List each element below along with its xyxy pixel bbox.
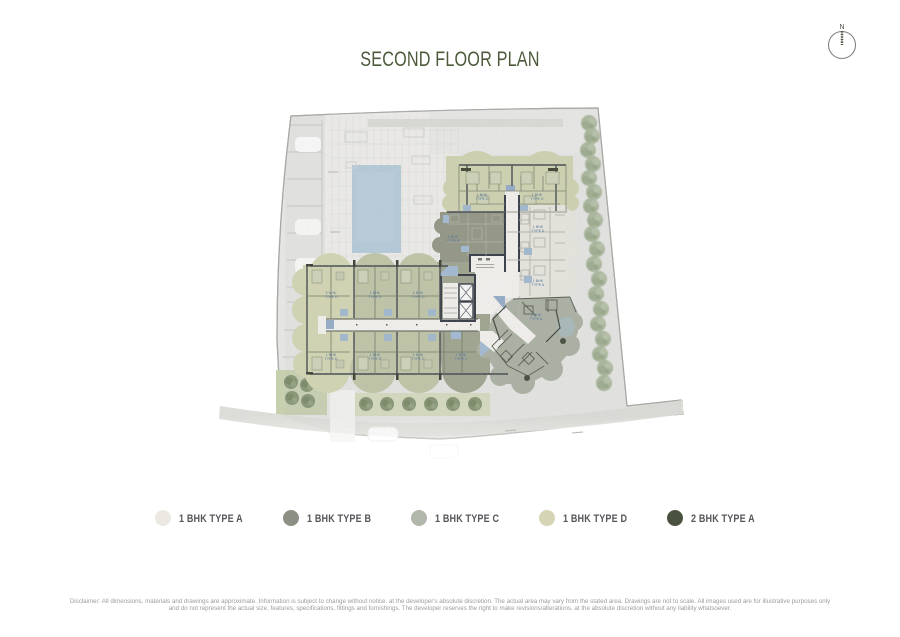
svg-text:N: N: [839, 24, 844, 31]
